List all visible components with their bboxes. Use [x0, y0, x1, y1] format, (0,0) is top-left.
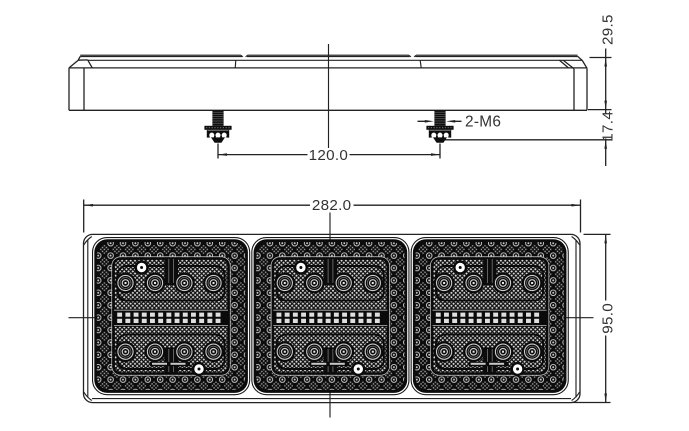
svg-text:17.4: 17.4: [600, 111, 617, 142]
svg-text:29.5: 29.5: [600, 14, 617, 45]
svg-text:2-M6: 2-M6: [465, 113, 501, 130]
svg-text:282.0: 282.0: [312, 197, 352, 214]
svg-text:120.0: 120.0: [309, 147, 349, 164]
svg-text:95.0: 95.0: [600, 303, 617, 334]
